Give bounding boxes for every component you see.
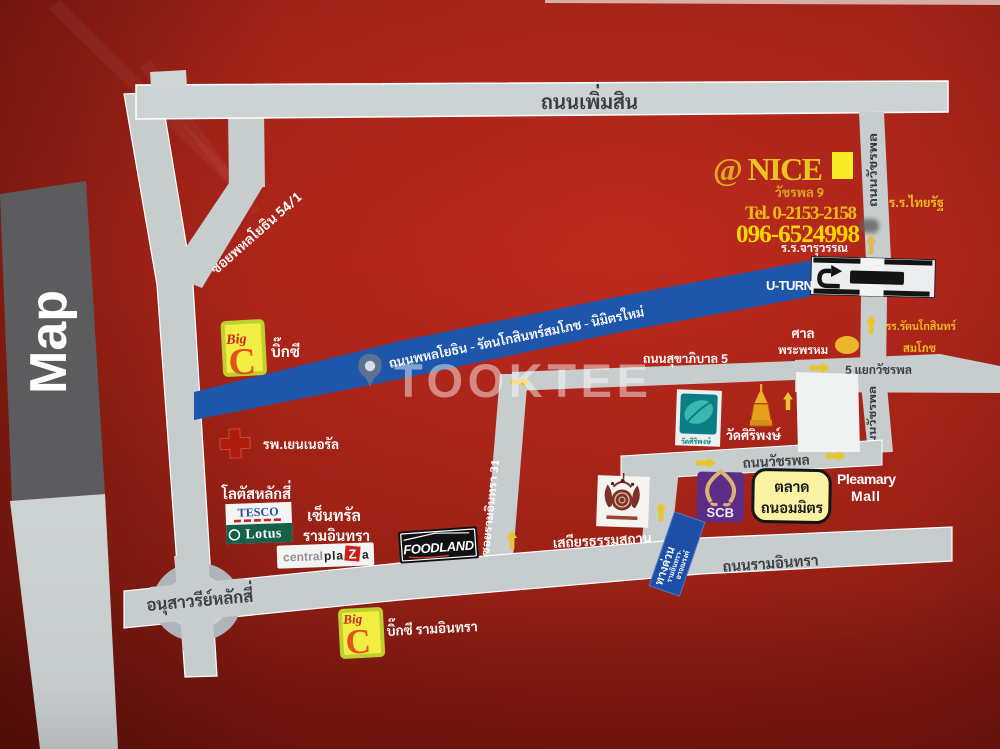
svg-text:central: central	[283, 549, 323, 564]
svg-text:a: a	[362, 547, 369, 561]
svg-text:C: C	[227, 340, 257, 383]
svg-text:Mall: Mall	[851, 488, 880, 504]
svg-text:Z: Z	[348, 546, 357, 561]
svg-text:Pleamary: Pleamary	[837, 471, 896, 487]
svg-text:Map: Map	[20, 290, 78, 394]
svg-text:@ NICE: @ NICE	[713, 151, 823, 187]
svg-text:TOOKTEE: TOOKTEE	[394, 354, 648, 407]
svg-text:096-6524998: 096-6524998	[736, 221, 860, 248]
svg-text:TESCO: TESCO	[237, 504, 279, 519]
svg-text:pla: pla	[324, 548, 344, 563]
svg-text:U-TURN: U-TURN	[766, 278, 813, 293]
svg-text:SCB: SCB	[706, 505, 734, 520]
svg-text:Lotus: Lotus	[245, 526, 282, 542]
svg-text:C: C	[344, 622, 371, 662]
